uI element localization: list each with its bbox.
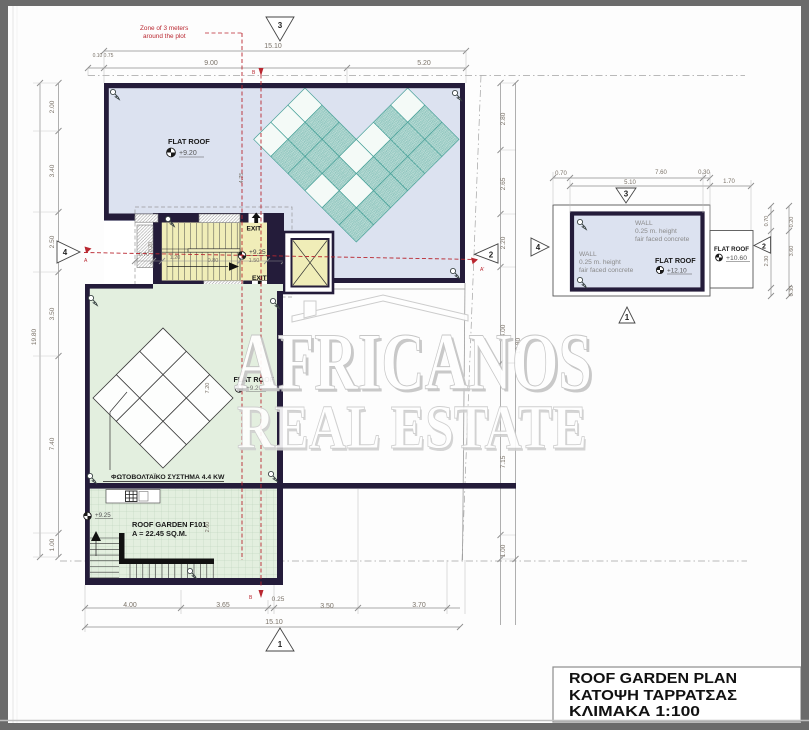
svg-text:19.80: 19.80 (31, 328, 38, 345)
svg-text:4: 4 (63, 248, 68, 257)
svg-text:WALL: WALL (579, 251, 597, 258)
svg-text:0.30: 0.30 (698, 170, 710, 176)
svg-text:EXIT: EXIT (247, 226, 262, 233)
svg-text:ROOF GARDEN PLAN: ROOF GARDEN PLAN (569, 670, 737, 687)
svg-text:3.60: 3.60 (789, 246, 795, 257)
svg-text:0.70: 0.70 (764, 216, 770, 227)
svg-text:+9.20: +9.20 (179, 150, 197, 157)
svg-text:0.25 m. height: 0.25 m. height (635, 228, 677, 235)
svg-text:0.80: 0.80 (208, 258, 219, 264)
svg-text:FLAT ROOF: FLAT ROOF (168, 137, 210, 146)
svg-text:7.20: 7.20 (205, 383, 211, 394)
svg-text:1.00: 1.00 (500, 544, 507, 557)
svg-text:around the plot: around the plot (143, 33, 186, 40)
svg-text:FLAT ROOF: FLAT ROOF (655, 256, 696, 265)
svg-text:REAL ESTATE: REAL ESTATE (237, 394, 587, 462)
svg-text:2.65: 2.65 (500, 177, 507, 190)
svg-text:FLAT ROOF: FLAT ROOF (714, 246, 749, 253)
svg-text:3.65: 3.65 (216, 602, 230, 609)
svg-text:3.50: 3.50 (320, 603, 334, 610)
svg-text:A': A' (480, 267, 484, 273)
svg-text:3.40: 3.40 (49, 164, 56, 177)
svg-text:+12.10: +12.10 (667, 268, 687, 275)
svg-text:Zone of 3 meters: Zone of 3 meters (140, 25, 188, 32)
svg-text:0.70: 0.70 (139, 252, 150, 258)
svg-text:ΦΩΤΟΒΟΛΤΑΪΚΟ ΣΥΣΤΗΜΑ 4.4 KW: ΦΩΤΟΒΟΛΤΑΪΚΟ ΣΥΣΤΗΜΑ 4.4 KW (111, 473, 225, 481)
svg-text:+9.25: +9.25 (249, 249, 266, 256)
svg-text:0.20: 0.20 (148, 242, 154, 252)
svg-text:0.25 m. height: 0.25 m. height (579, 259, 621, 266)
svg-text:9.00: 9.00 (204, 60, 218, 67)
svg-text:2.20: 2.20 (500, 236, 507, 249)
svg-text:5.10: 5.10 (624, 180, 636, 186)
svg-text:0.70: 0.70 (555, 171, 567, 177)
svg-text:4.00: 4.00 (123, 602, 137, 609)
svg-text:fair faced concrete: fair faced concrete (635, 236, 690, 243)
svg-text:ROOF GARDEN F101: ROOF GARDEN F101 (132, 520, 206, 529)
svg-text:+10.60: +10.60 (726, 255, 748, 262)
svg-text:3: 3 (624, 190, 629, 199)
svg-text:A = 22.45 SQ.M.: A = 22.45 SQ.M. (132, 529, 187, 538)
svg-text:15.10: 15.10 (265, 619, 283, 626)
svg-text:WALL: WALL (635, 220, 653, 227)
svg-text:3.50: 3.50 (49, 307, 56, 320)
svg-text:2: 2 (762, 244, 766, 251)
svg-text:+9.25: +9.25 (95, 512, 111, 519)
svg-text:2: 2 (489, 251, 494, 260)
svg-text:0.25: 0.25 (272, 596, 285, 603)
svg-text:1.20: 1.20 (170, 255, 181, 261)
svg-text:1.50: 1.50 (249, 258, 260, 264)
svg-text:1.00: 1.00 (49, 538, 56, 551)
svg-text:0.30: 0.30 (789, 286, 795, 297)
svg-text:5.20: 5.20 (417, 60, 431, 67)
svg-text:2.80: 2.80 (500, 112, 507, 125)
svg-text:0.20: 0.20 (789, 217, 795, 228)
svg-text:ΚΛΙΜΑΚΑ 1:100: ΚΛΙΜΑΚΑ 1:100 (569, 703, 700, 720)
svg-text:3: 3 (278, 21, 283, 30)
svg-text:ΚΑΤΟΨΗ ΤΑΡΡΑΤΣΑΣ: ΚΑΤΟΨΗ ΤΑΡΡΑΤΣΑΣ (569, 687, 737, 704)
svg-text:15.10: 15.10 (264, 43, 282, 50)
svg-text:fair faced concrete: fair faced concrete (579, 267, 634, 274)
svg-text:1: 1 (625, 313, 630, 322)
svg-text:EXIT: EXIT (252, 275, 267, 282)
svg-text:3.70: 3.70 (412, 602, 426, 609)
svg-text:1.70: 1.70 (723, 179, 735, 185)
svg-text:2.00: 2.00 (49, 100, 56, 113)
svg-text:1: 1 (278, 640, 283, 649)
svg-text:2.50: 2.50 (49, 235, 56, 248)
svg-text:7.40: 7.40 (49, 437, 56, 450)
svg-text:7.60: 7.60 (655, 170, 667, 176)
svg-text:0.10 0.75: 0.10 0.75 (93, 53, 114, 59)
svg-text:4: 4 (536, 243, 541, 252)
svg-text:2.30: 2.30 (764, 256, 770, 267)
